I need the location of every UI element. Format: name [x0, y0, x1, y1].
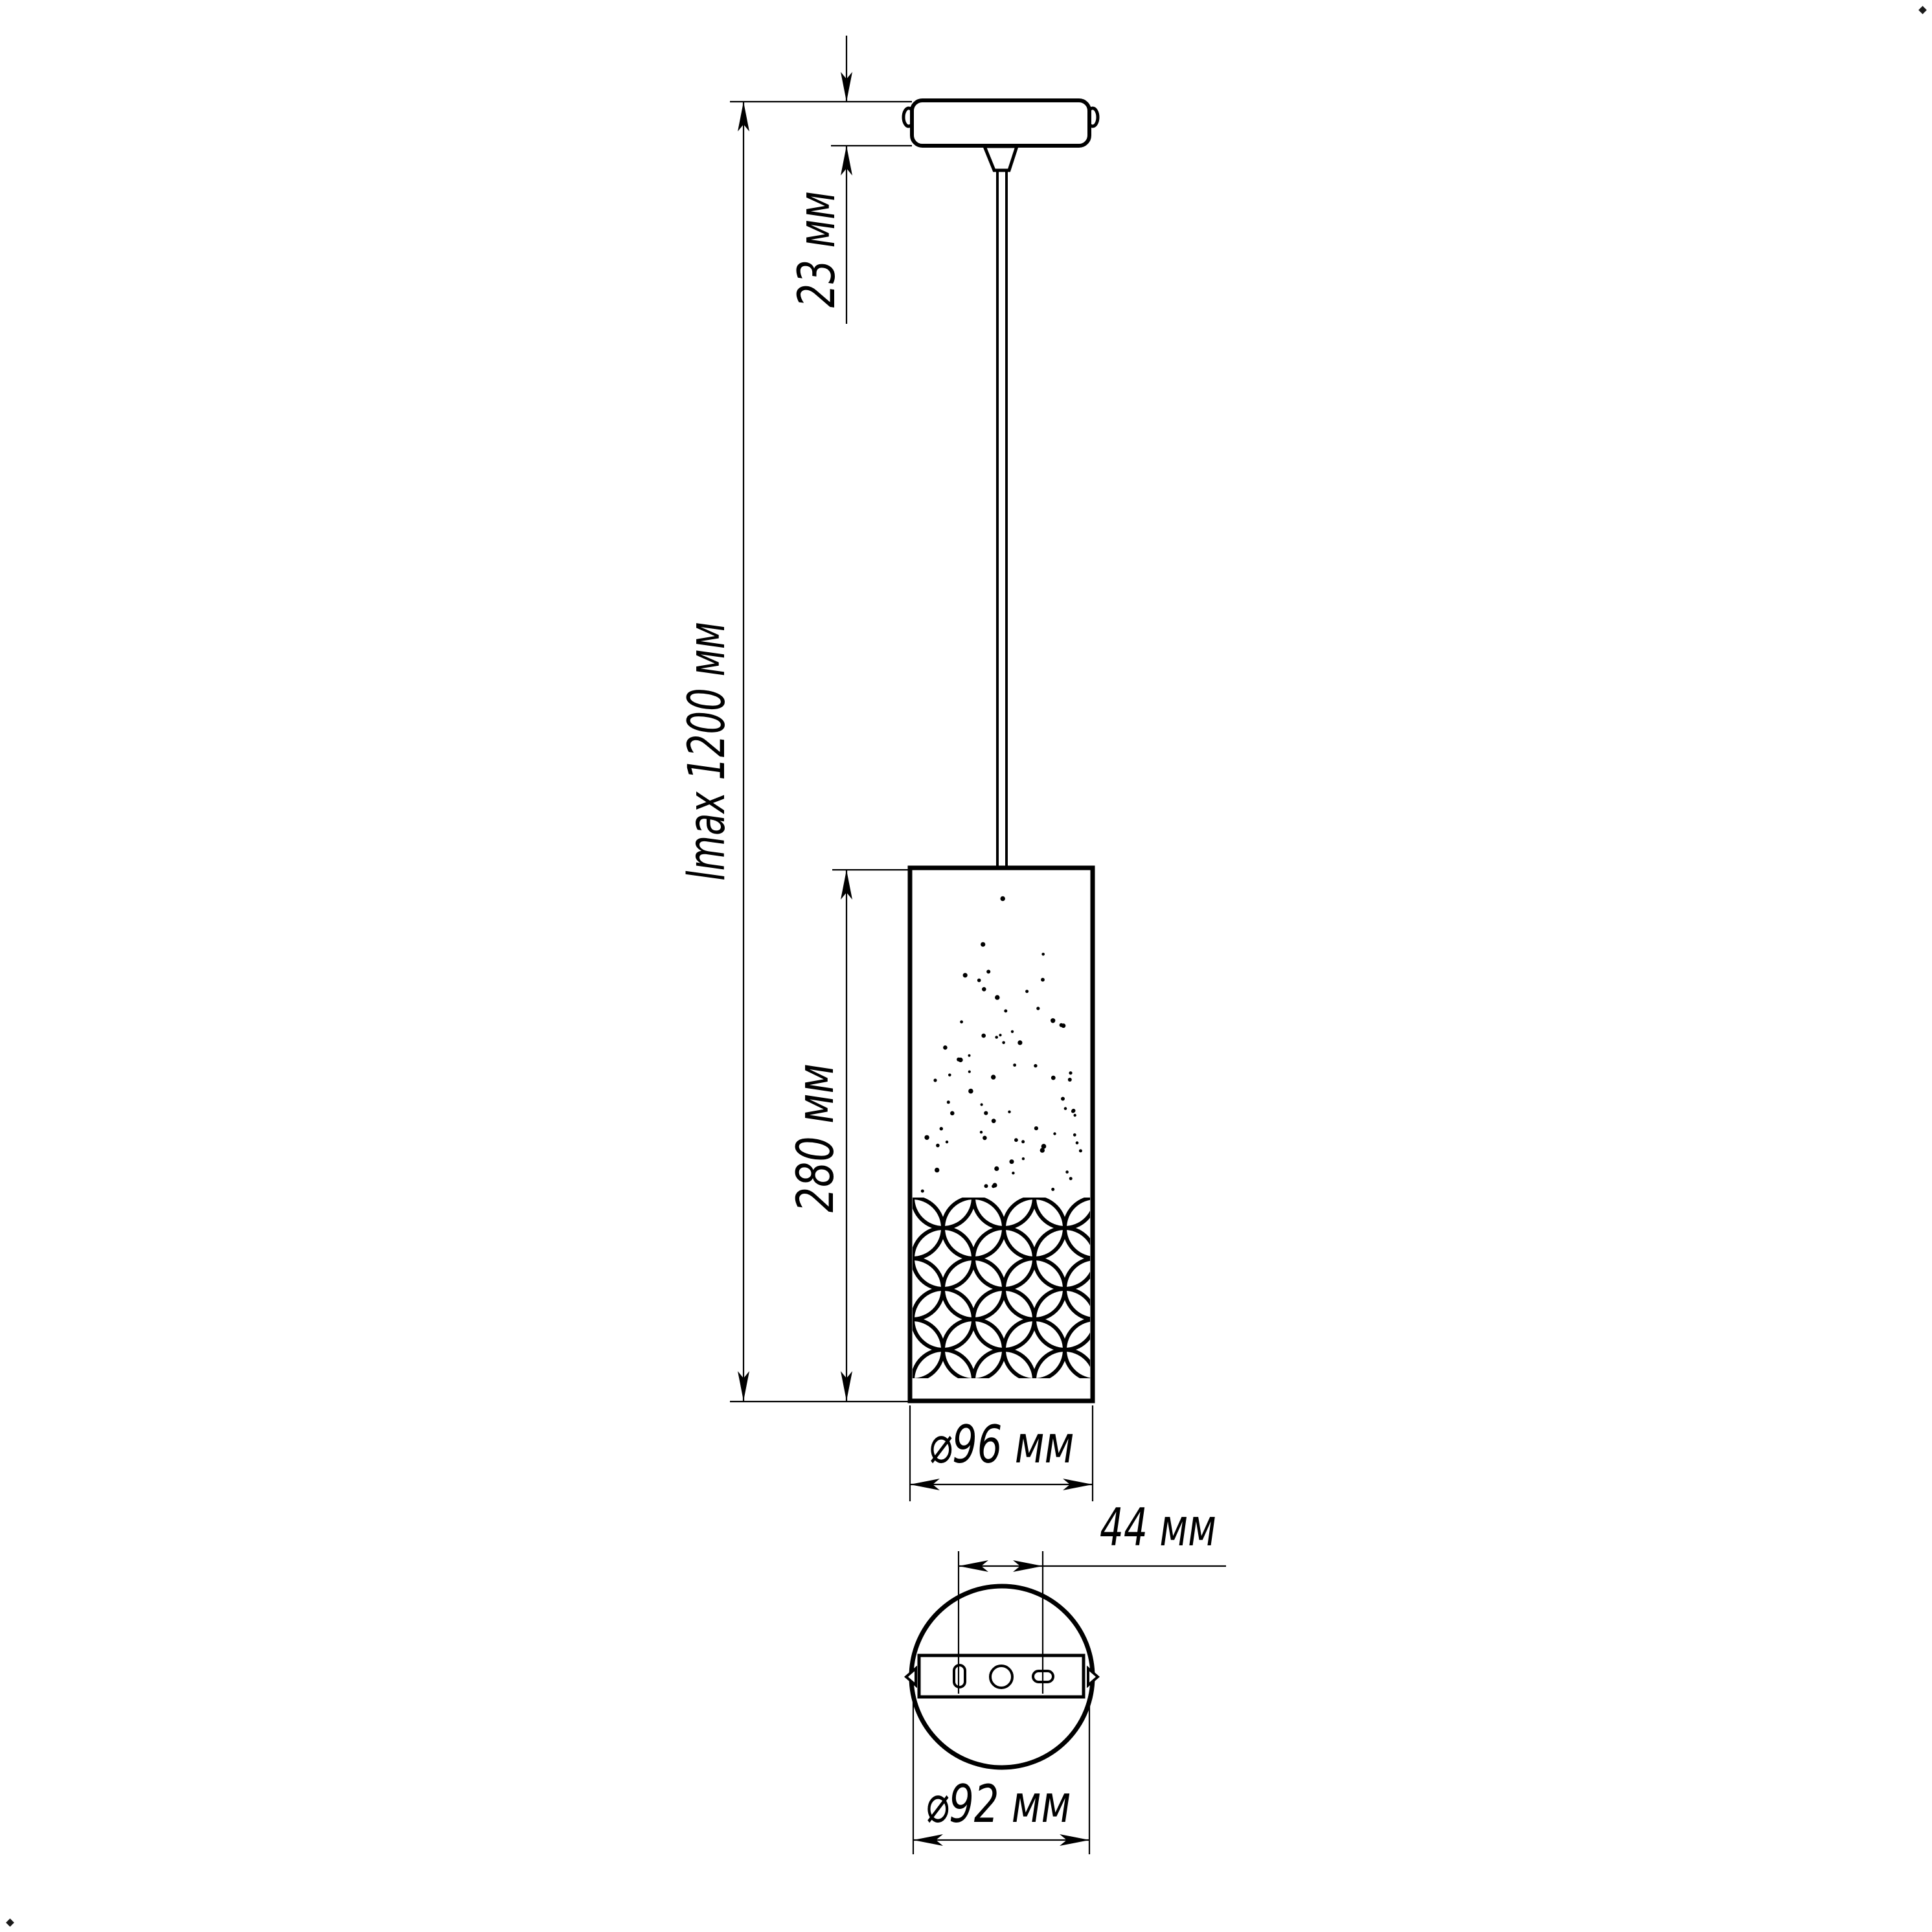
corner-speck-bottom-left — [6, 1918, 14, 1927]
ceiling-canopy — [912, 100, 1089, 146]
dim-label-shade-diameter: ⌀96 мм — [929, 1415, 1074, 1475]
dim-label-canopy-height: 23 мм — [788, 191, 847, 308]
mounting-slot-left — [954, 1665, 965, 1687]
dim-label-max-length: lmax 1200 мм — [678, 622, 736, 881]
drawing-canvas: 23 мм lmax 1200 мм 280 мм ⌀96 мм 44 мм ⌀… — [0, 0, 1932, 1932]
side-screw-right-icon — [1088, 1668, 1098, 1685]
wire-hole-center — [990, 1666, 1012, 1688]
cord-grip — [984, 146, 1017, 170]
dim-label-hole-spacing: 44 мм — [1100, 1497, 1216, 1558]
canopy-bottom-view — [906, 1586, 1098, 1767]
dim-label-canopy-diameter: ⌀92 мм — [926, 1774, 1071, 1834]
dim-label-shade-height: 280 мм — [787, 1063, 845, 1212]
corner-speck-top-right — [1918, 6, 1927, 14]
suspension-wire — [997, 170, 1006, 870]
shade-body-fill — [910, 868, 1093, 1401]
side-screw-left-icon — [906, 1668, 916, 1685]
